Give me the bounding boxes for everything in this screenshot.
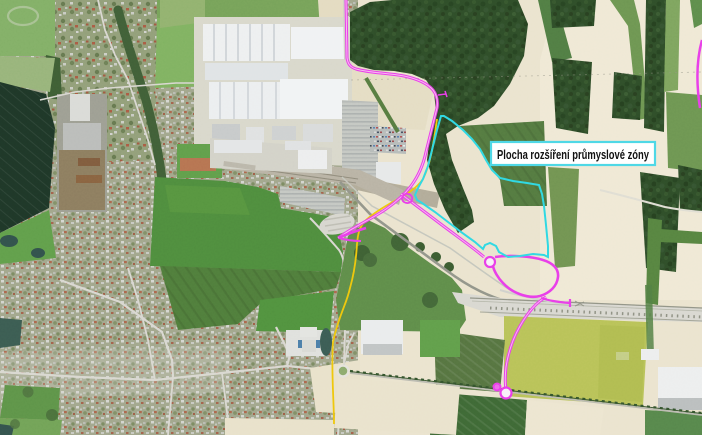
svg-text:Plocha rozšíření průmyslové zó: Plocha rozšíření průmyslové zóny bbox=[497, 147, 650, 162]
